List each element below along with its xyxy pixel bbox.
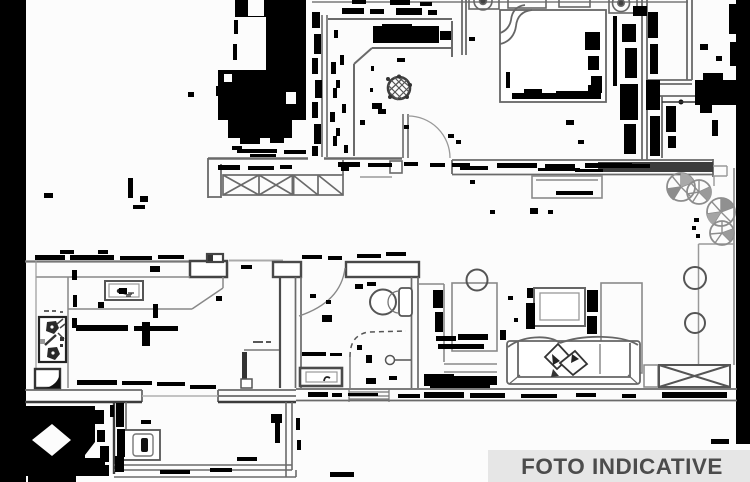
svg-text:FOTO INDICATIVE: FOTO INDICATIVE bbox=[521, 454, 723, 479]
